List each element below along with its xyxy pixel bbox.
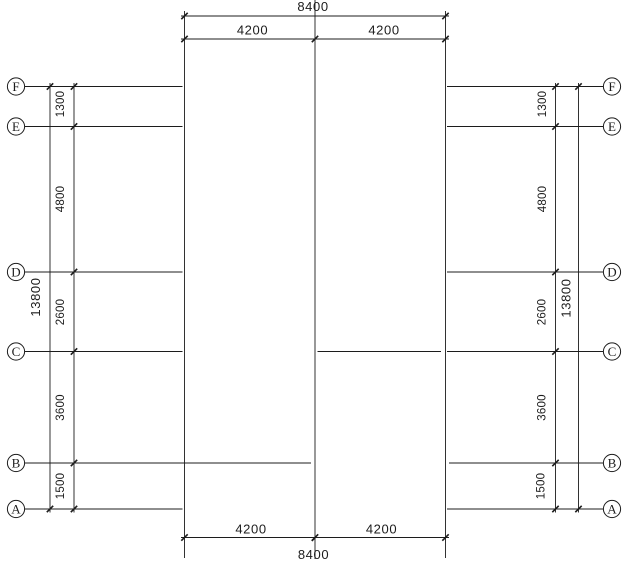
svg-text:4200: 4200	[368, 23, 399, 38]
svg-text:3600: 3600	[537, 394, 549, 420]
svg-text:3600: 3600	[55, 394, 67, 420]
svg-text:4200: 4200	[235, 522, 266, 537]
svg-text:4800: 4800	[55, 186, 67, 212]
svg-text:4200: 4200	[366, 522, 397, 537]
svg-text:13800: 13800	[559, 278, 574, 317]
svg-text:E: E	[608, 119, 616, 134]
svg-text:8400: 8400	[298, 547, 329, 559]
svg-text:2600: 2600	[55, 299, 67, 325]
svg-text:C: C	[12, 344, 21, 359]
svg-text:B: B	[608, 456, 617, 471]
svg-text:4800: 4800	[537, 186, 549, 212]
svg-text:1300: 1300	[537, 91, 549, 117]
svg-text:A: A	[11, 502, 21, 517]
svg-text:F: F	[12, 79, 19, 94]
svg-text:8400: 8400	[297, 0, 328, 14]
svg-text:B: B	[12, 456, 21, 471]
svg-text:A: A	[607, 502, 617, 517]
svg-text:1500: 1500	[536, 473, 548, 499]
svg-text:1300: 1300	[55, 91, 67, 117]
svg-text:D: D	[11, 265, 20, 280]
svg-text:4200: 4200	[237, 23, 268, 38]
svg-text:F: F	[608, 79, 615, 94]
svg-text:13800: 13800	[28, 277, 43, 316]
svg-text:C: C	[608, 344, 617, 359]
svg-text:D: D	[607, 265, 616, 280]
svg-text:2600: 2600	[537, 299, 549, 325]
svg-text:E: E	[12, 119, 20, 134]
svg-text:1500: 1500	[55, 473, 67, 499]
